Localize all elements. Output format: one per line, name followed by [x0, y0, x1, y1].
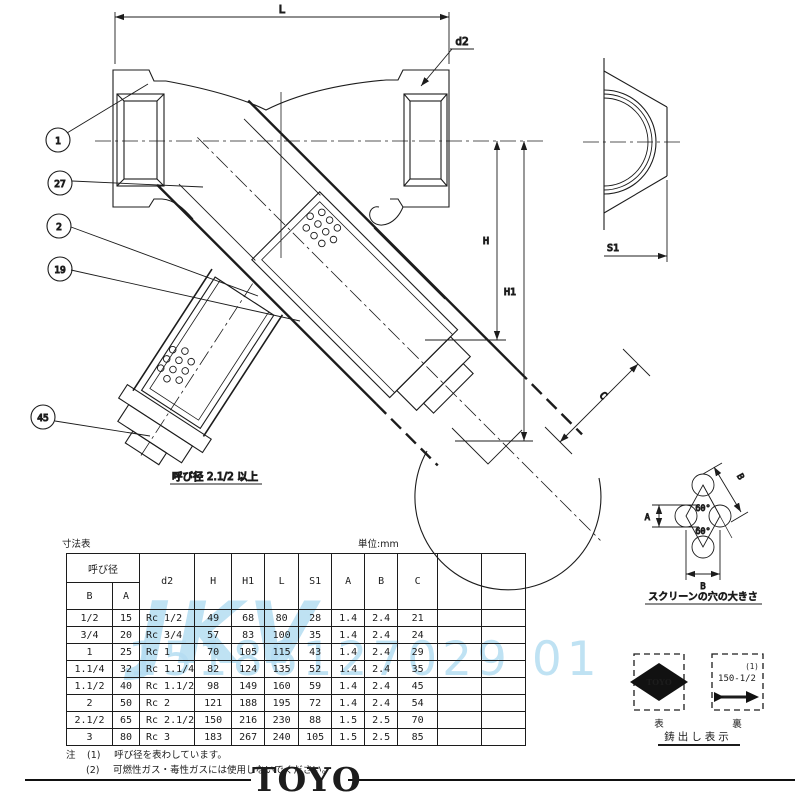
table-cell: 15	[113, 610, 140, 627]
table-cell: 21	[398, 610, 438, 627]
table-cell: 2.5	[365, 712, 398, 729]
col-header-nominal-A: A	[113, 583, 140, 610]
dim-L-label: L	[279, 3, 286, 16]
table-row: 125Rc 170105115431.42.429	[67, 644, 526, 661]
table-cell: 105	[232, 644, 265, 661]
drawing-sheet: JKV 15186127029 01 L d2	[0, 0, 800, 800]
col-header-B: B	[365, 554, 398, 610]
table-cell: 2.4	[365, 678, 398, 695]
table-cell: 43	[299, 644, 332, 661]
front-label: 表	[654, 718, 664, 730]
table-cell: 195	[265, 695, 299, 712]
table-cell: Rc 1	[140, 644, 195, 661]
table-cell: Rc 2.1/2	[140, 712, 195, 729]
footer-rule-left	[25, 779, 251, 781]
table-cell: 82	[195, 661, 232, 678]
table-cell-empty	[482, 661, 526, 678]
dimension-table-body: 呼び径 d2 H H1 L S1 A B C B A 1/215Rc 1/249…	[67, 554, 526, 746]
dim-H	[425, 141, 506, 340]
balloon-1-label: 1	[55, 136, 61, 147]
table-cell: 3/4	[67, 627, 113, 644]
right-socket	[404, 94, 447, 186]
col-header-C: C	[398, 554, 438, 610]
table-cell: 267	[232, 729, 265, 746]
balloon-45-label: 45	[37, 413, 48, 424]
table-row: 1.1/432Rc 1.1/482124135521.42.435	[67, 661, 526, 678]
note-1: 注 (1) 呼び径を表わしています。	[66, 747, 227, 761]
left-socket	[117, 94, 164, 186]
table-cell: Rc 1/2	[140, 610, 195, 627]
table-cell-empty	[438, 644, 482, 661]
screen-dim-A	[652, 505, 699, 527]
table-cell: 2.1/2	[67, 712, 113, 729]
table-cell: 80	[265, 610, 299, 627]
table-cell: 50	[113, 695, 140, 712]
casting-marks: TOYO (1) 150-1/2 表 裏 鋳出し表示	[630, 654, 763, 745]
table-cell: 3	[67, 729, 113, 746]
screen-angle-top: 60°	[695, 504, 710, 514]
screen-dim-B-diagonal-label: B	[734, 472, 745, 482]
back-label: 裏	[732, 718, 742, 730]
col-header-empty-1	[438, 554, 482, 610]
table-cell: 2.4	[365, 695, 398, 712]
col-header-H1: H1	[232, 554, 265, 610]
screen-dim-B-bottom	[686, 530, 720, 580]
table-cell-empty	[482, 627, 526, 644]
detail-view: 呼び径 2.1/2 以上	[99, 256, 295, 484]
table-cell: 105	[299, 729, 332, 746]
table-cell-empty	[482, 712, 526, 729]
table-cell: 1.4	[332, 610, 365, 627]
table-row: 380Rc 31832672401051.52.585	[67, 729, 526, 746]
table-cell: 240	[265, 729, 299, 746]
table-cell: 52	[299, 661, 332, 678]
table-cell: 2.4	[365, 644, 398, 661]
table-row: 2.1/265Rc 2.1/2150216230881.52.570	[67, 712, 526, 729]
dim-S1-label: S1	[607, 243, 619, 254]
table-cell: Rc 3/4	[140, 627, 195, 644]
table-cell: 2.4	[365, 610, 398, 627]
balloon-27: 27	[48, 171, 72, 195]
table-cell: 83	[232, 627, 265, 644]
nominal-header-cell: 呼び径	[67, 554, 140, 583]
table-cell-empty	[482, 610, 526, 627]
table-cell: 1/2	[67, 610, 113, 627]
footer-rule-right	[348, 779, 795, 781]
table-cell: 121	[195, 695, 232, 712]
table-cell: 1.4	[332, 661, 365, 678]
dim-H-label: H	[483, 236, 489, 247]
table-cell: 98	[195, 678, 232, 695]
table-cell: 68	[232, 610, 265, 627]
table-cell: 1.1/2	[67, 678, 113, 695]
dimension-table: 呼び径 d2 H H1 L S1 A B C B A 1/215Rc 1/249…	[66, 553, 526, 746]
col-header-empty-2	[482, 554, 526, 610]
table-cell: 216	[232, 712, 265, 729]
screen-dim-A-label: A	[645, 513, 651, 523]
table-cell: 65	[113, 712, 140, 729]
table-cell: 28	[299, 610, 332, 627]
dim-H1	[455, 141, 533, 441]
col-header-H: H	[195, 554, 232, 610]
table-cell: 1.1/4	[67, 661, 113, 678]
col-header-S1: S1	[299, 554, 332, 610]
screen-hole-diagram: 60° 60° A B B スクリーンの穴の大きさ	[645, 463, 762, 604]
table-cell: 124	[232, 661, 265, 678]
table-cell: 115	[265, 644, 299, 661]
table-cell: 20	[113, 627, 140, 644]
table-cell: 150	[195, 712, 232, 729]
table-cell: 1.4	[332, 695, 365, 712]
table-cell: 230	[265, 712, 299, 729]
col-header-L: L	[265, 554, 299, 610]
size-mark-text: 150-1/2	[718, 674, 756, 684]
brand-logo: TOYO	[252, 760, 348, 799]
table-cell: 35	[398, 661, 438, 678]
dim-d2-leader	[421, 49, 474, 86]
table-cell: 80	[113, 729, 140, 746]
table-cell: 49	[195, 610, 232, 627]
table-cell: Rc 1.1/4	[140, 661, 195, 678]
table-cell: 2.4	[365, 627, 398, 644]
balloon-2: 2	[47, 214, 71, 238]
table-cell: 2.4	[365, 661, 398, 678]
table-cell: Rc 1.1/2	[140, 678, 195, 695]
table-cell: Rc 3	[140, 729, 195, 746]
casting-caption: 鋳出し表示	[664, 730, 732, 743]
table-cell-empty	[482, 678, 526, 695]
col-header-nominal-B: B	[67, 583, 113, 610]
strainer-branch	[154, 94, 645, 585]
table-cell: 88	[299, 712, 332, 729]
table-cell: 188	[232, 695, 265, 712]
table-cell: 1	[67, 644, 113, 661]
detail-caption: 呼び径 2.1/2 以上	[172, 470, 258, 483]
table-cell: 149	[232, 678, 265, 695]
table-row: 1.1/240Rc 1.1/298149160591.42.445	[67, 678, 526, 695]
table-cell-empty	[438, 712, 482, 729]
table-cell: 1.4	[332, 644, 365, 661]
side-view: S1	[583, 58, 682, 262]
table-cell-empty	[482, 729, 526, 746]
dim-d2-label: d2	[455, 35, 468, 48]
table-row: 1/215Rc 1/2496880281.42.421	[67, 610, 526, 627]
table-cell: 29	[398, 644, 438, 661]
table-header-row-1: 呼び径 d2 H H1 L S1 A B C	[67, 554, 526, 583]
table-cell: 70	[195, 644, 232, 661]
table-cell-empty	[438, 661, 482, 678]
size-note-ref: (1)	[745, 662, 759, 671]
table-cell: 2	[67, 695, 113, 712]
dim-H1-label: H1	[504, 287, 516, 298]
table-cell: Rc 2	[140, 695, 195, 712]
screen-dim-B-bottom-label: B	[700, 582, 705, 592]
balloon-2-label: 2	[56, 222, 62, 233]
balloon-19-label: 19	[54, 265, 66, 276]
table-cell-empty	[438, 610, 482, 627]
table-cell: 57	[195, 627, 232, 644]
table-title: 寸法表	[62, 536, 91, 550]
table-cell-empty	[438, 678, 482, 695]
screen-angle-bottom: 60°	[695, 527, 710, 537]
flow-arrow-icon	[714, 691, 759, 703]
col-header-d2: d2	[140, 554, 195, 610]
table-cell: 59	[299, 678, 332, 695]
note-1-no: (1)	[87, 750, 111, 761]
main-view: L d2	[31, 3, 650, 590]
table-row: 250Rc 2121188195721.42.454	[67, 695, 526, 712]
table-cell: 72	[299, 695, 332, 712]
note-prefix: 注	[66, 747, 84, 761]
table-row: 3/420Rc 3/45783100351.42.424	[67, 627, 526, 644]
balloon-45: 45	[31, 405, 55, 429]
table-cell: 1.5	[332, 729, 365, 746]
screen-hole-caption: スクリーンの穴の大きさ	[648, 590, 758, 603]
balloon-1: 1	[46, 128, 70, 152]
table-cell: 32	[113, 661, 140, 678]
unit-label: 単位:mm	[358, 536, 399, 550]
dim-C	[545, 349, 650, 454]
toyo-diamond-text: TOYO	[646, 677, 672, 687]
table-cell: 25	[113, 644, 140, 661]
table-cell-empty	[438, 627, 482, 644]
table-cell: 135	[265, 661, 299, 678]
table-cell: 24	[398, 627, 438, 644]
centerlines	[95, 92, 545, 258]
note-1-text: 呼び径を表わしています。	[114, 750, 227, 761]
note-2-no: (2)	[86, 765, 110, 776]
table-cell: 70	[398, 712, 438, 729]
table-cell-empty	[438, 729, 482, 746]
table-cell-empty	[438, 695, 482, 712]
col-header-A: A	[332, 554, 365, 610]
dim-C-label: C	[597, 390, 609, 402]
table-cell: 35	[299, 627, 332, 644]
balloon-27-label: 27	[54, 179, 65, 190]
table-cell: 40	[113, 678, 140, 695]
table-cell: 85	[398, 729, 438, 746]
table-cell: 1.4	[332, 627, 365, 644]
table-cell: 2.5	[365, 729, 398, 746]
table-cell: 183	[195, 729, 232, 746]
table-cell: 1.4	[332, 678, 365, 695]
table-cell-empty	[482, 644, 526, 661]
balloon-19: 19	[48, 257, 72, 281]
table-cell: 54	[398, 695, 438, 712]
table-cell: 160	[265, 678, 299, 695]
table-cell: 1.5	[332, 712, 365, 729]
table-cell: 100	[265, 627, 299, 644]
table-cell-empty	[482, 695, 526, 712]
table-cell: 45	[398, 678, 438, 695]
dim-L	[115, 12, 449, 64]
